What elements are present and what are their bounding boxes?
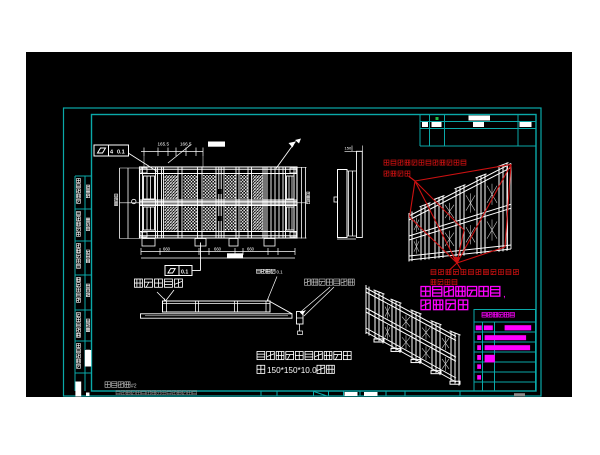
svg-text:#2: #2 [131,384,137,390]
svg-text:660: 660 [247,246,255,251]
svg-text:165.5: 165.5 [158,142,170,147]
svg-text:660: 660 [214,246,222,251]
svg-text:150: 150 [345,146,352,151]
svg-text:166.5: 166.5 [180,142,192,147]
svg-text:150*150*10.0: 150*150*10.0 [267,366,317,375]
svg-text:0.1: 0.1 [277,270,284,275]
svg-text:,: , [503,289,506,300]
svg-text:0.1: 0.1 [181,270,188,276]
svg-text:0.1: 0.1 [117,150,125,156]
svg-text:660: 660 [163,246,171,251]
